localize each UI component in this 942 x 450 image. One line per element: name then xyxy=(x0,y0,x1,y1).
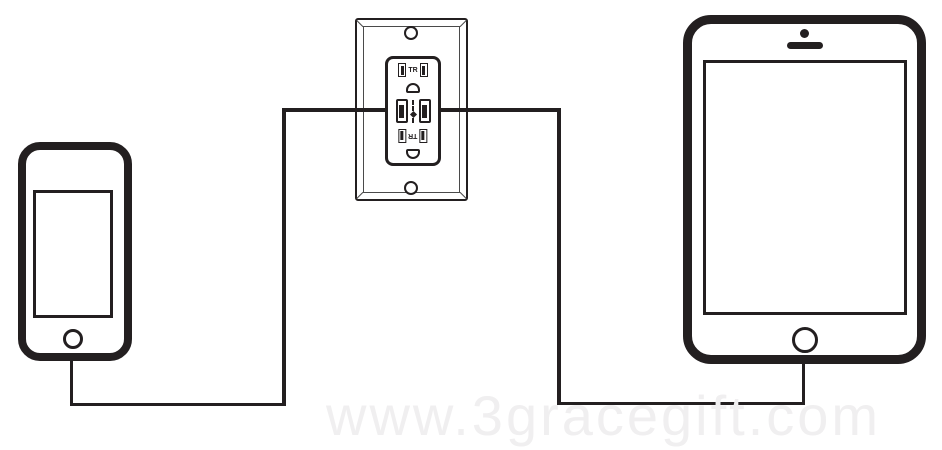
usb-tongue xyxy=(422,105,427,118)
phone-screen xyxy=(33,190,113,318)
cable-left-riser xyxy=(282,108,286,406)
plate-bevel-corner-bl xyxy=(356,192,363,199)
outlet-slot-bar xyxy=(401,66,404,75)
receptacle-bottom: TR xyxy=(398,129,427,143)
outlet-slot-bar xyxy=(401,132,404,141)
cable-bottom-left xyxy=(70,403,286,406)
usb-port-right-icon xyxy=(419,99,431,123)
outlet-slot-icon xyxy=(420,63,428,77)
tr-label-top: TR xyxy=(408,67,417,74)
cable-right-riser xyxy=(557,108,561,405)
speaker-bar-icon xyxy=(787,42,823,49)
ground-hole-top-icon xyxy=(406,83,420,93)
outlet-slot-bar xyxy=(422,132,425,141)
receptacle-top: TR xyxy=(398,63,427,77)
usb-outlet-module: TR TR xyxy=(385,56,441,166)
ground-hole-bottom-icon xyxy=(406,149,420,159)
outlet-slot-icon xyxy=(398,129,406,143)
camera-dot-icon xyxy=(800,29,809,38)
screw-hole-bottom-icon xyxy=(404,181,418,195)
marking-bar xyxy=(412,100,414,105)
plate-bevel-corner-br xyxy=(460,192,467,199)
smartphone-icon xyxy=(18,142,132,361)
diagram-canvas: TR TR www.3gracegift.com xyxy=(0,0,942,450)
outlet-slot-bar xyxy=(422,66,425,75)
tablet-icon xyxy=(683,15,926,364)
outlet-slot-icon xyxy=(398,63,406,77)
usb-center-markings-icon xyxy=(411,100,416,123)
usb-tongue xyxy=(399,105,404,118)
charging-figure-icon xyxy=(409,110,416,117)
watermark-text: www.3gracegift.com xyxy=(326,383,881,448)
tablet-home-button-icon xyxy=(792,327,818,353)
plate-bevel-corner-tr xyxy=(460,20,467,27)
usb-port-row xyxy=(396,99,431,123)
phone-home-button-icon xyxy=(63,329,83,349)
tablet-screen xyxy=(703,60,907,315)
outlet-slot-icon xyxy=(420,129,428,143)
plate-bevel-corner-tl xyxy=(356,20,363,27)
usb-port-left-icon xyxy=(396,99,408,123)
screw-hole-top-icon xyxy=(404,26,418,40)
cable-phone-pigtail xyxy=(70,355,73,406)
tr-label-bottom: TR xyxy=(408,133,417,140)
